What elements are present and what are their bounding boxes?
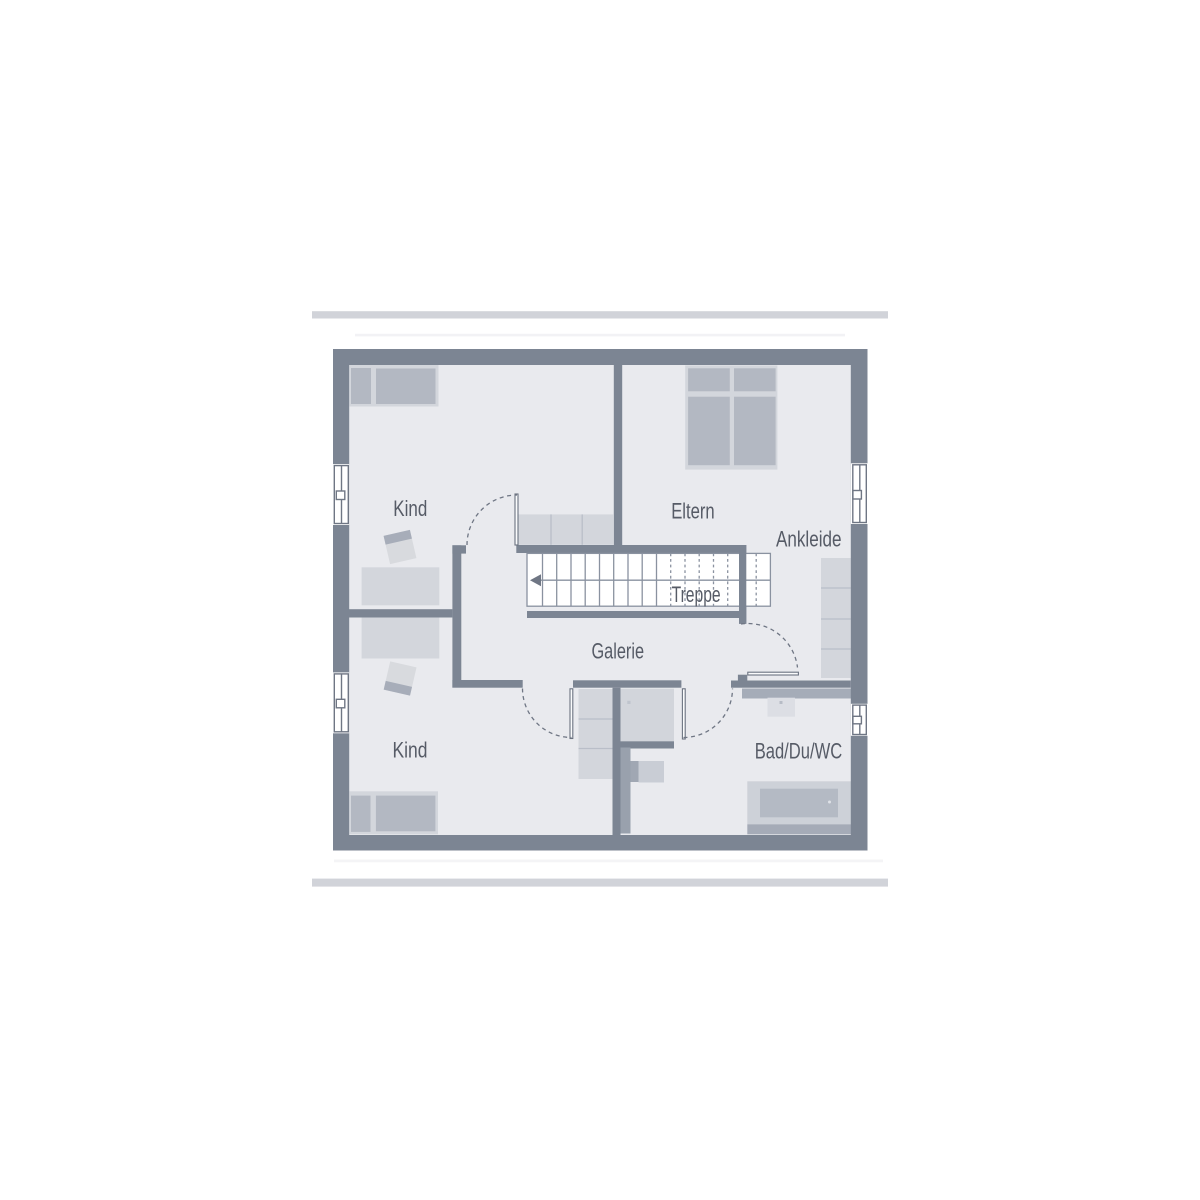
svg-text:Bad/Du/WC: Bad/Du/WC	[755, 739, 843, 764]
svg-text:Kind: Kind	[393, 496, 427, 521]
svg-text:Treppe: Treppe	[672, 582, 721, 607]
svg-text:Kind: Kind	[393, 738, 428, 763]
svg-text:Eltern: Eltern	[671, 499, 715, 524]
svg-text:Ankleide: Ankleide	[776, 527, 842, 552]
svg-text:Galerie: Galerie	[592, 639, 645, 664]
